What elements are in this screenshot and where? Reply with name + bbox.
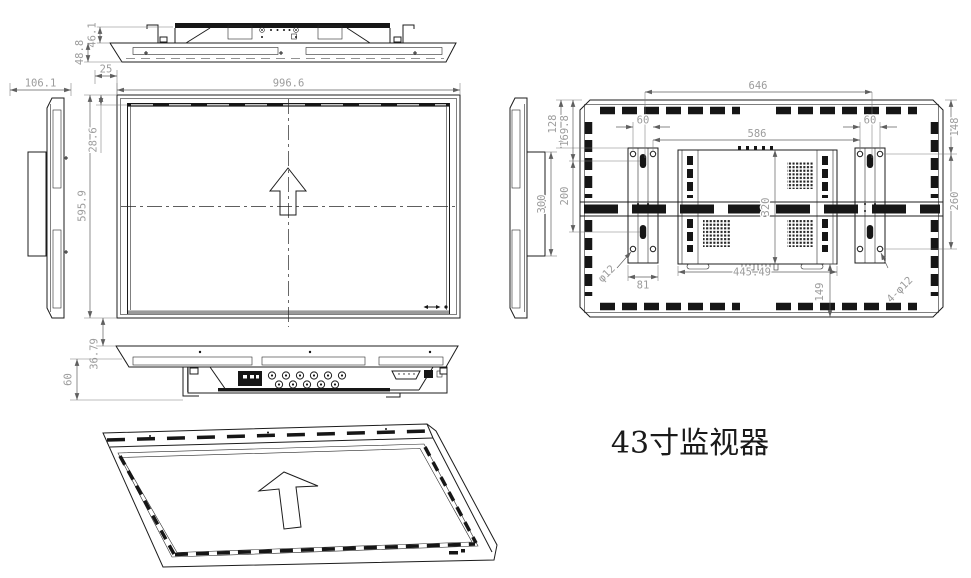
perf-grille-2: [703, 220, 730, 247]
dim-front-height: 595.9: [77, 190, 89, 222]
bottom-leg-right: [386, 393, 400, 397]
bottom-vent-3: [379, 357, 443, 365]
side-right-vents-upper: [512, 110, 520, 188]
dim-front-bezel: 28.6: [88, 127, 100, 152]
dim-bottom-height: 60: [63, 373, 75, 386]
dim-bracket-plate-height: 300: [536, 195, 548, 214]
perf-grille-1: [787, 162, 814, 189]
side-left-outline: [47, 98, 64, 318]
usb-port: [424, 370, 433, 378]
side-left-vents-upper: [53, 110, 61, 188]
orientation-arrow-icon: [259, 472, 318, 529]
dim-rear-box-bottom-offset: 149: [814, 283, 826, 302]
bottom-vent-2: [262, 357, 365, 365]
power-led-icon: [444, 305, 447, 308]
dim-top-offset: 25: [100, 64, 113, 76]
dim-rear-box-width: 445.49: [733, 267, 771, 279]
engineering-drawing-page: 46.1 48.8 25 106.1 996.6 595.9 28.6: [0, 0, 971, 578]
dim-rear-hole-spacing: 260: [949, 192, 961, 211]
dim-front-width: 996.6: [273, 78, 305, 90]
dim-rear-bracket-width: 81: [637, 280, 650, 292]
perf-grille-3: [787, 220, 814, 247]
ir-sensor-icon: [424, 305, 441, 309]
front-view: 996.6 595.9 28.6: [77, 78, 461, 328]
mount-hook-right: [403, 25, 414, 43]
side-left-bracket: [28, 152, 46, 256]
bottom-vent-1: [133, 357, 252, 365]
dim-top-total-height: 48.8: [74, 40, 86, 65]
dim-rear-hole-offset-left: 60: [637, 115, 650, 127]
bottom-view: 36.79 60: [63, 318, 459, 400]
isometric-view: [103, 424, 497, 567]
dim-rear-top-to-bracket: 128: [547, 115, 559, 134]
dim-rear-hole-span: 646: [749, 80, 768, 92]
dim-side-depth: 106.1: [25, 78, 57, 90]
control-buttons: [260, 28, 299, 39]
side-left-vents-lower: [53, 230, 61, 308]
dim-rear-hole-offset-right: 60: [864, 115, 877, 127]
top-view: 46.1 48.8 25 106.1: [10, 22, 456, 96]
dim-rear-top-to-hole: 148: [949, 118, 961, 137]
product-title: 43寸监视器: [611, 426, 769, 461]
bnc-connectors: [268, 372, 345, 388]
top-vent-strip-right: [306, 48, 442, 55]
top-rear-bar: [175, 23, 390, 28]
dim-rear-hole-dia: φ12: [596, 263, 618, 285]
rear-view: 646 586 60 60 128 169.8 200 81 φ12 148 2…: [547, 80, 961, 317]
bottom-body-outline: [116, 346, 458, 367]
top-vent-strip-left: [133, 48, 278, 55]
dim-rear-slot-spacing: 200: [559, 187, 571, 206]
dim-rear-box-height: 320: [760, 198, 772, 217]
side-view-left: [28, 98, 68, 318]
mount-hook-left: [147, 25, 158, 43]
side-right-vents-lower: [512, 230, 520, 308]
dim-rear-hole-callout: 4-φ12: [884, 274, 915, 305]
dim-rear-inner-span: 586: [748, 128, 767, 140]
orientation-arrow-icon: [270, 168, 306, 215]
vga-connector: [392, 371, 420, 379]
drawing-sheet: 46.1 48.8 25 106.1 996.6 595.9 28.6: [0, 0, 971, 578]
dim-rear-top-to-slot: 169.8: [559, 115, 571, 147]
dim-bottom-gap: 36.79: [89, 338, 101, 370]
